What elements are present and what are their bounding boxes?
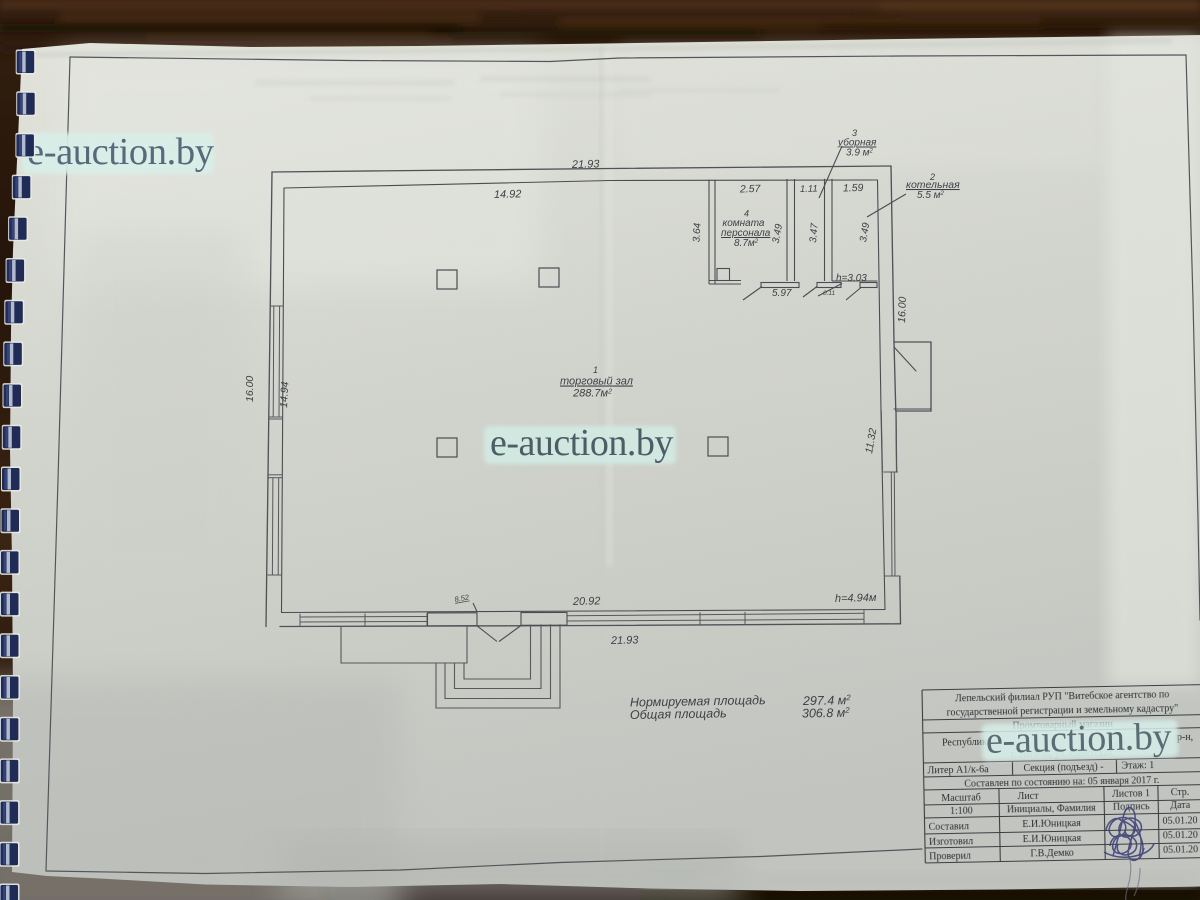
svg-text:16.00: 16.00 (244, 376, 256, 402)
svg-text:e-auction.by: e-auction.by (490, 422, 673, 464)
svg-text:Подпись: Подпись (1113, 801, 1150, 813)
svg-text:e-auction.by: e-auction.by (27, 131, 215, 173)
svg-text:21.93: 21.93 (610, 634, 640, 647)
svg-text:h=3.03: h=3.03 (836, 273, 867, 284)
svg-text:1.11: 1.11 (800, 184, 818, 195)
svg-text:Стр.: Стр. (1171, 787, 1190, 798)
svg-text:р-н,: р-н, (1177, 732, 1193, 743)
svg-text:288.7м2: 288.7м2 (572, 388, 612, 400)
svg-text:Листов 1: Листов 1 (1112, 788, 1150, 800)
svg-text:05.01.20: 05.01.20 (1162, 815, 1197, 827)
svg-text:Е.И.Юницкая: Е.И.Юницкая (1022, 818, 1081, 830)
svg-text:Г.В.Демко: Г.В.Демко (1030, 848, 1074, 860)
svg-text:20.92: 20.92 (572, 595, 601, 608)
svg-text:h=4.94м: h=4.94м (835, 592, 877, 605)
svg-text:2.57: 2.57 (739, 183, 762, 196)
svg-text:1.59: 1.59 (843, 182, 864, 195)
svg-text:4: 4 (744, 209, 749, 219)
svg-text:3: 3 (852, 128, 857, 138)
svg-text:14.94: 14.94 (278, 381, 291, 408)
svg-text:16.00: 16.00 (896, 296, 909, 323)
svg-text:e-auction.by: e-auction.by (985, 716, 1171, 762)
svg-text:торговый зал: торговый зал (560, 376, 633, 388)
svg-text:3.47: 3.47 (808, 222, 821, 243)
svg-text:0.11: 0.11 (823, 290, 836, 297)
svg-text:Изготовил: Изготовил (929, 836, 973, 848)
svg-text:Масштаб: Масштаб (941, 792, 981, 804)
svg-text:Составил: Составил (929, 821, 970, 833)
svg-text:Лист: Лист (1017, 791, 1039, 802)
svg-text:Этаж: 1: Этаж: 1 (1121, 760, 1154, 772)
svg-text:Литер А1/к-6а: Литер А1/к-6а (927, 764, 989, 776)
svg-text:Е.И.Юницкая: Е.И.Юницкая (1023, 833, 1082, 845)
svg-text:1:100: 1:100 (950, 806, 973, 817)
svg-text:3.64: 3.64 (692, 222, 704, 242)
svg-text:Секция (подъезд) -: Секция (подъезд) - (1023, 762, 1103, 775)
svg-text:Инициалы, Фамилия: Инициалы, Фамилия (1007, 803, 1096, 816)
svg-text:Общая площадь: Общая площадь (630, 706, 727, 722)
svg-text:3.9 м2: 3.9 м2 (846, 148, 874, 159)
svg-text:306.8 м2: 306.8 м2 (802, 706, 851, 721)
svg-text:1: 1 (593, 365, 598, 375)
svg-text:Проверил: Проверил (929, 851, 971, 863)
svg-text:5.5 м2: 5.5 м2 (917, 190, 945, 201)
svg-text:5.97: 5.97 (772, 288, 792, 299)
svg-text:14.92: 14.92 (494, 188, 522, 201)
svg-text:05.01.20: 05.01.20 (1163, 844, 1198, 856)
svg-text:05.01.20: 05.01.20 (1163, 830, 1198, 842)
svg-text:Дата: Дата (1170, 800, 1191, 811)
svg-text:21.93: 21.93 (571, 158, 601, 171)
